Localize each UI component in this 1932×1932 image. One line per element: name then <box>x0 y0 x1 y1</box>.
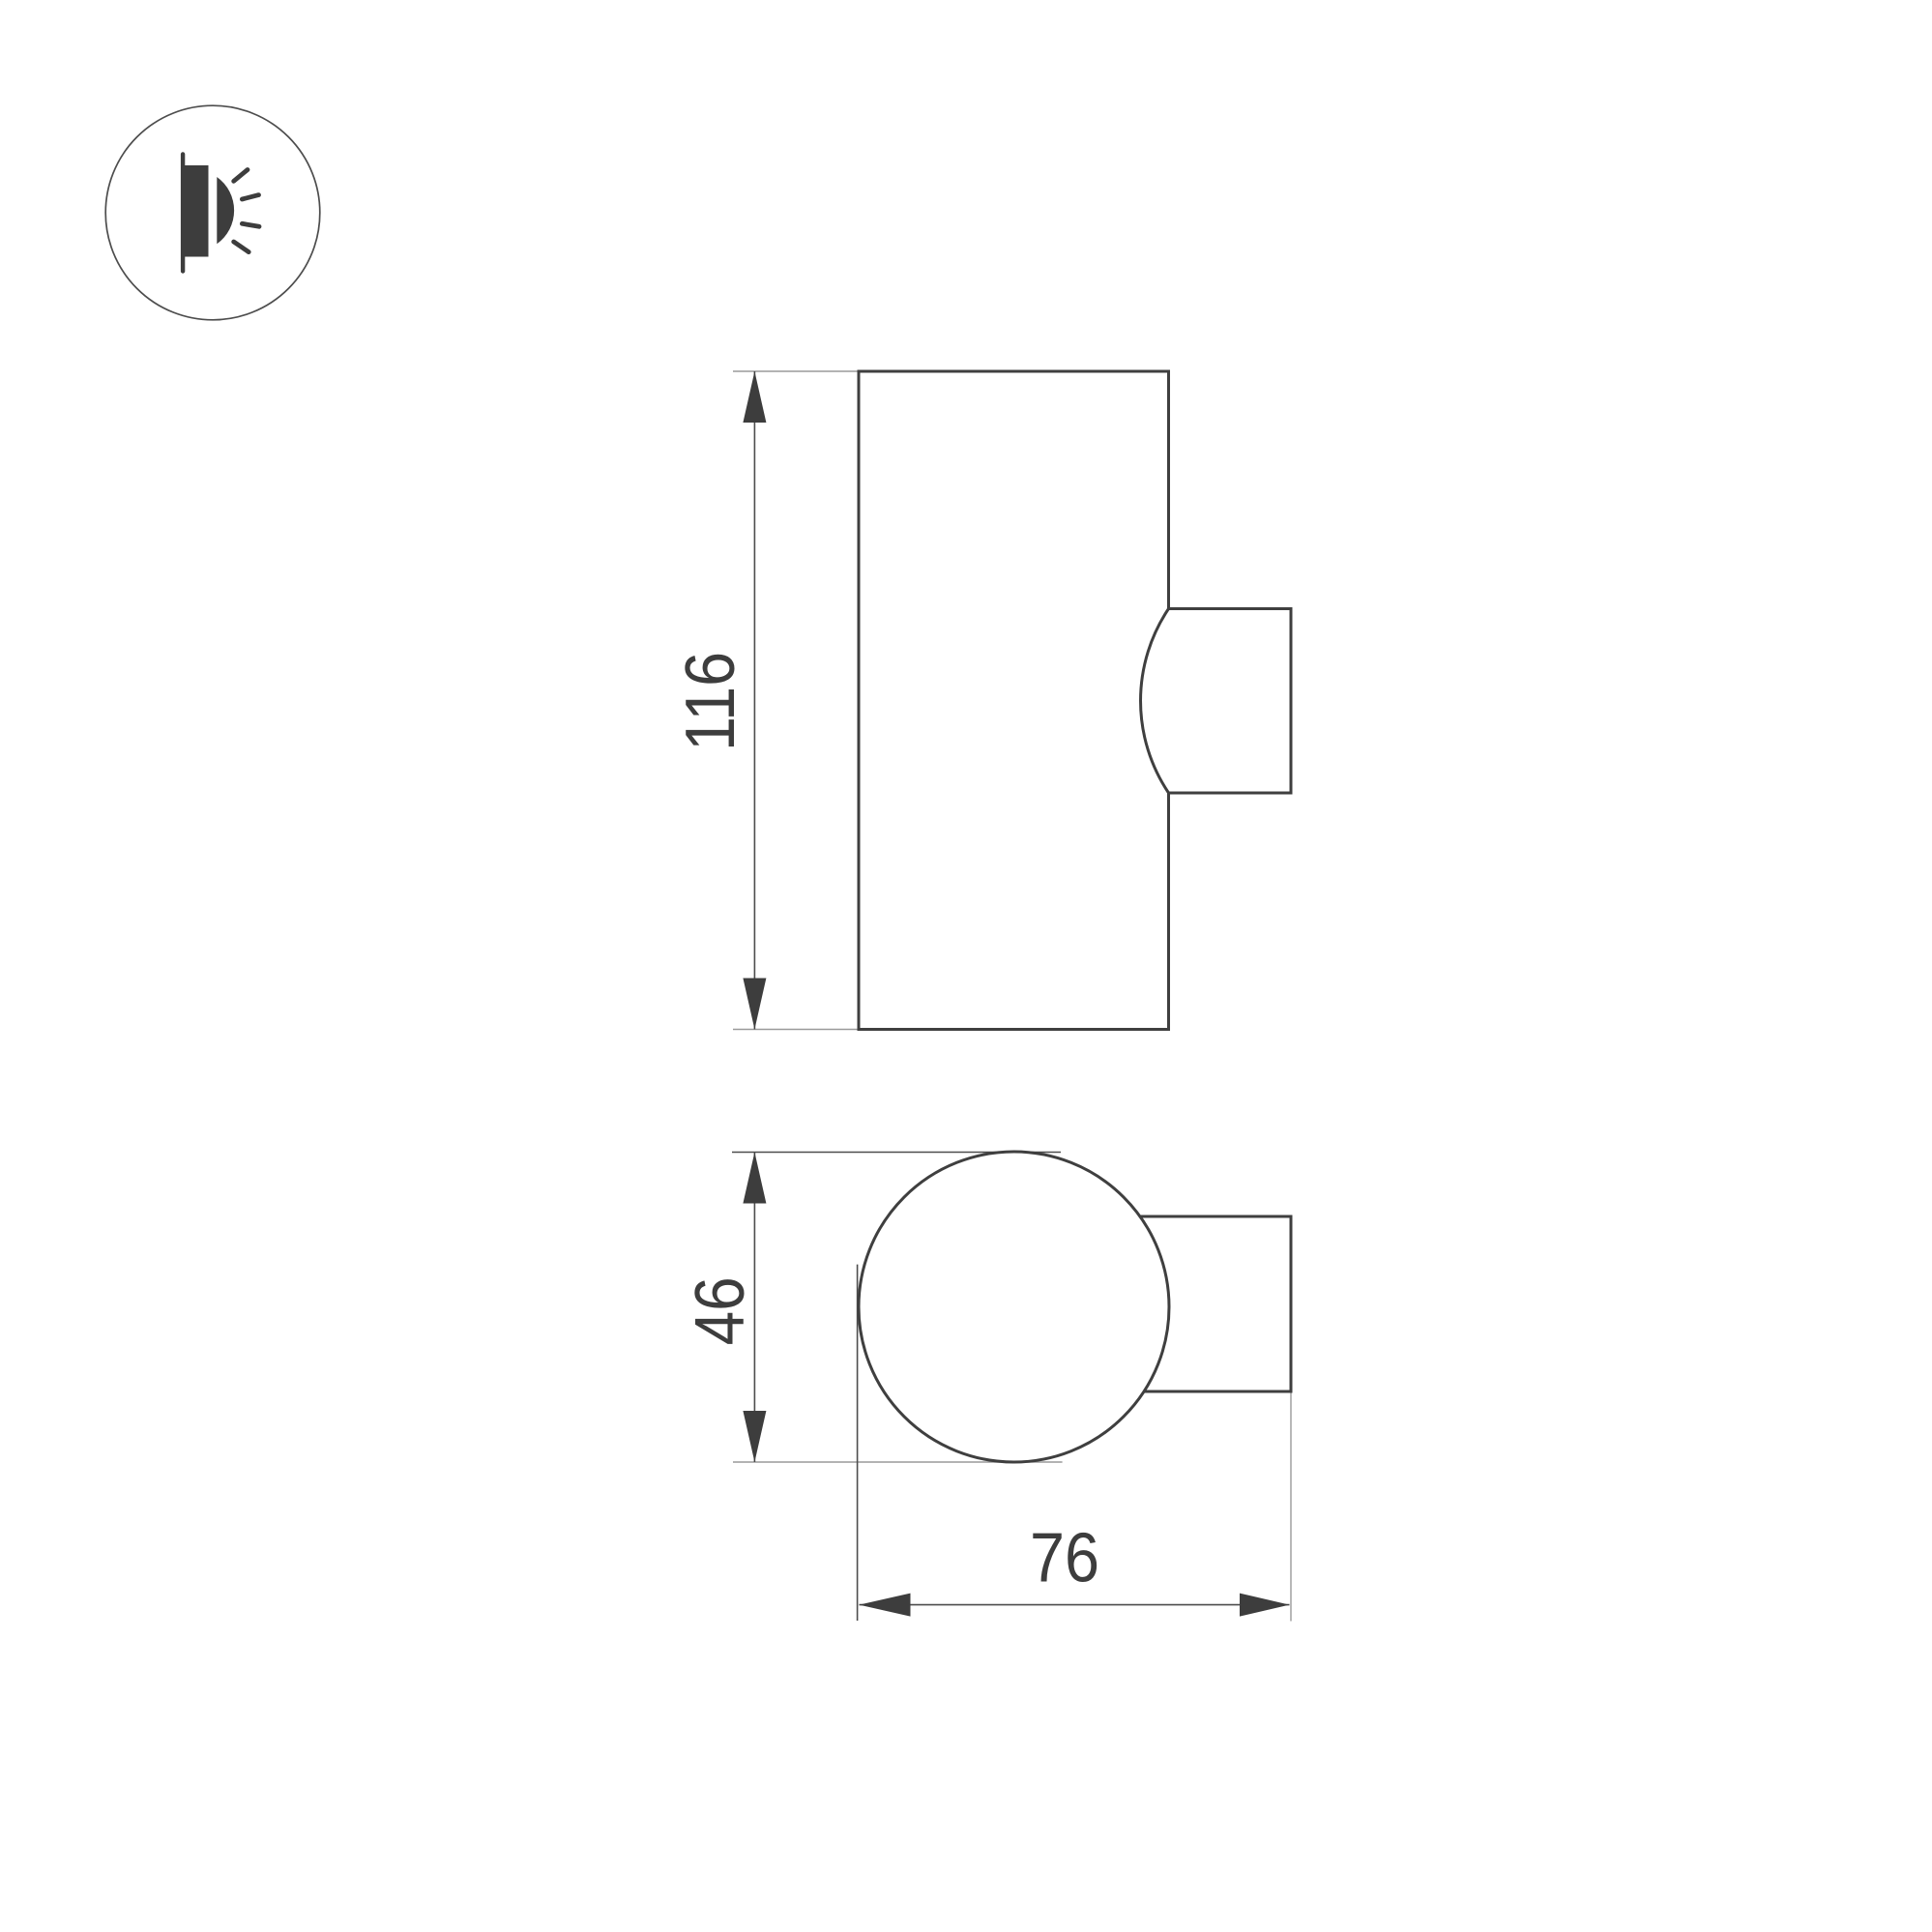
svg-text:76: 76 <box>1030 1519 1099 1597</box>
svg-text:46: 46 <box>681 1276 759 1345</box>
svg-text:116: 116 <box>671 652 749 751</box>
